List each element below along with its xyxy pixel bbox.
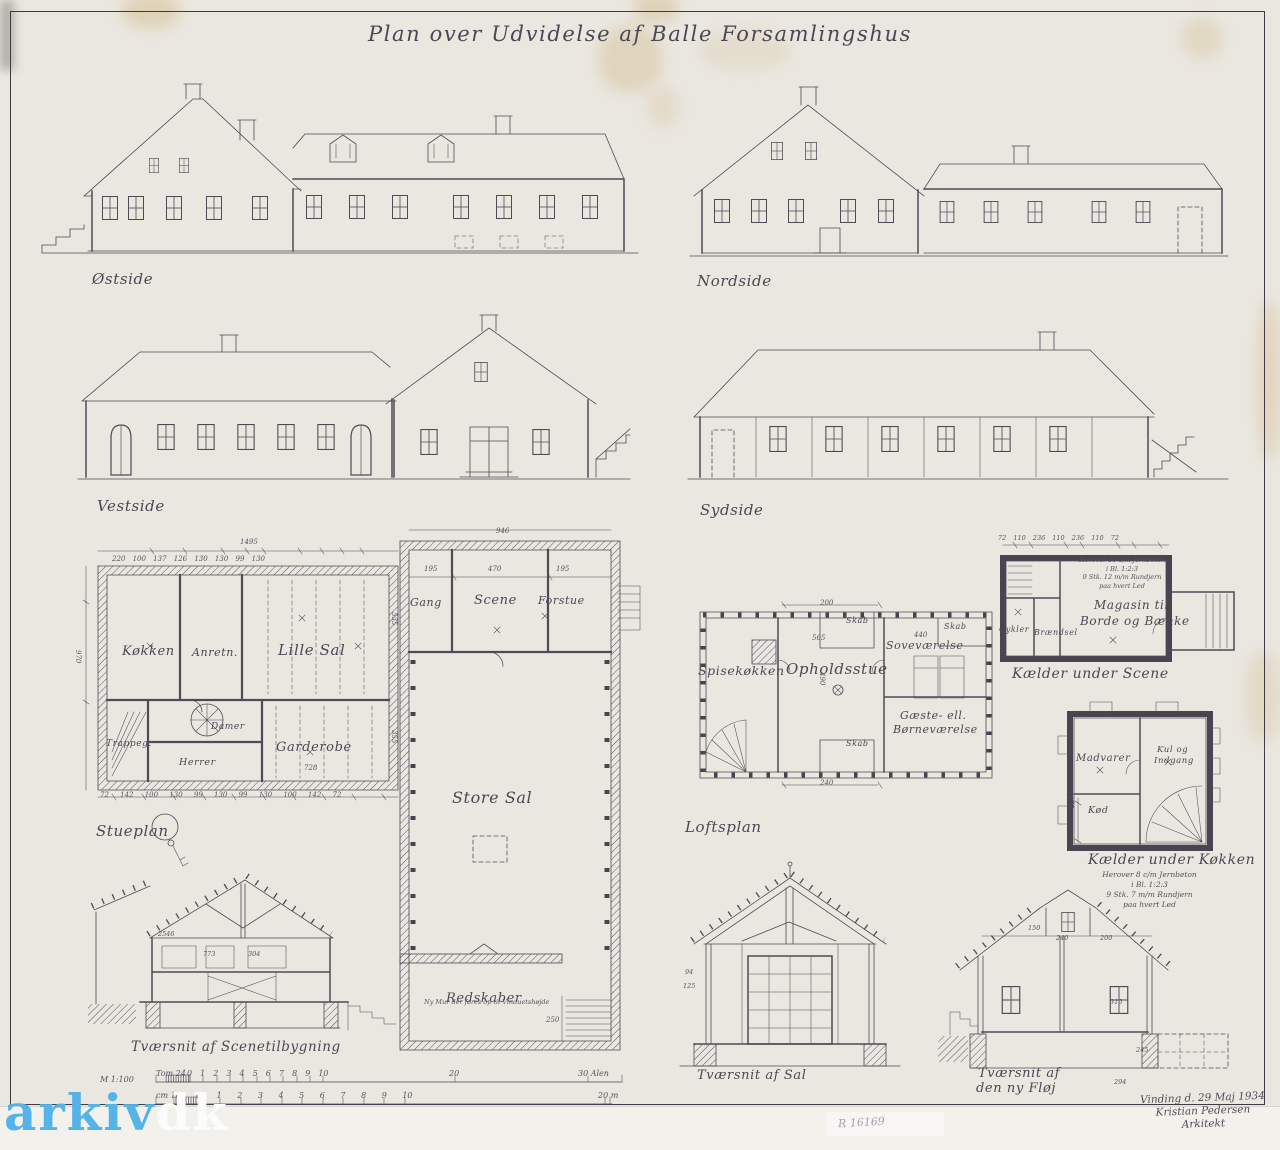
section-scenetilbygning-drawing (88, 876, 396, 1030)
dim-lillesal: 535 (390, 612, 398, 625)
note-line: paa hvert Led (1092, 900, 1207, 910)
arkiv-dk-watermark: arkivdk (4, 1086, 229, 1140)
room-anretn: Anretn. (192, 646, 238, 659)
dim-loft-sove: 440 (914, 631, 927, 639)
note-line: paa hvert Led (1072, 582, 1172, 591)
note-line: Herover 8 c/m Jernbeton (1092, 870, 1207, 880)
note-kaelder-scene: Herover 10 c/m Jernbeton i Bl. 1:2:3 9 S… (1072, 556, 1172, 590)
dim-kaelder-kokken-h: 175 (1066, 795, 1074, 808)
label-stueplan: Stueplan (96, 822, 169, 840)
dim-scene-c: 195 (556, 565, 569, 573)
room-store-sal: Store Sal (452, 788, 532, 807)
room-lille-sal: Lille Sal (278, 641, 345, 659)
elevation-sydside-drawing (688, 332, 1228, 479)
scalebar-bottom-20: 20 m (598, 1091, 618, 1100)
label-nordside: Nordside (697, 272, 772, 290)
room-herrer: Herrer (179, 757, 216, 768)
label-kaelder-kokken: Kælder under Køkken (1088, 852, 1255, 868)
dim-loft-top: 200 (820, 599, 833, 607)
note-line: i Bl. 1:2:3 (1072, 565, 1172, 574)
room-forstue: Forstue (538, 594, 585, 607)
label-ostside: Østside (92, 270, 153, 288)
dim-stueplan-left: 970 (74, 650, 82, 663)
dim-scene-b: 470 (488, 565, 501, 573)
dim-scene-total: 946 (496, 527, 509, 535)
room-cykler: Cykler (999, 625, 1029, 634)
archive-number-stamp: R 16169 (838, 1115, 885, 1130)
label-loftsplan: Loftsplan (685, 818, 762, 836)
dim-loft-mid: 565 (812, 634, 825, 642)
drawing-title: Plan over Udvidelse af Balle Forsamlings… (368, 22, 912, 46)
dim-kaelder-scene-row: 72 110 236 110 236 110 72 (998, 534, 1119, 542)
room-skab: Skab (944, 622, 967, 631)
room-skab: Skab (846, 739, 869, 748)
dim-scene-a: 195 (424, 565, 437, 573)
label-snit-scene: Tværsnit af Scenetilbygning (131, 1039, 341, 1055)
room-trappegang: Trappeg. (106, 739, 152, 749)
dim-garderobe-h: 355 (390, 730, 398, 743)
elevation-nordside-drawing (690, 87, 1228, 256)
room-gaeste-line1: Gæste- ell. (900, 709, 967, 722)
scalebar-top-20: 20 (449, 1069, 459, 1078)
room-madvarer: Madvarer (1076, 753, 1131, 764)
dim-snit-scene-b: 773 (203, 950, 215, 958)
dim-sal-b: 125 (683, 982, 695, 990)
label-kaelder-scene: Kælder under Scene (1012, 666, 1169, 682)
dim-stueplan-bottom-row: 72 142 100 130 99 130 99 130 100 142 72 (100, 791, 341, 799)
dim-snit-scene-a: 2546 (158, 930, 175, 938)
room-spisekokken: Spisekøkken (698, 663, 785, 678)
dim-floj-b: 240 (1056, 934, 1068, 942)
note-line: 9 Stk. 7 m/m Rundjern (1092, 890, 1207, 900)
room-opholdsstue: Opholdsstue (786, 660, 888, 678)
room-magasin-line2: Borde og Bænke (1080, 614, 1190, 628)
dim-floj-e: 245 (1136, 1046, 1148, 1054)
dim-floj-c: 200 (1100, 934, 1112, 942)
architect-signature: Vinding d. 29 Maj 1934 Kristian Pedersen… (1127, 1089, 1278, 1133)
label-sydside: Sydside (700, 501, 764, 519)
room-kul-line1: Kul og (1157, 745, 1188, 755)
scalebar-top-30: 30 Alen (578, 1069, 609, 1078)
scanned-architectural-drawing-sheet: Plan over Udvidelse af Balle Forsamlings… (0, 0, 1280, 1150)
note-store-sal-wall: Ny Mur der føres op til Vinduetshøjde (424, 998, 549, 1006)
room-damer: Damer (211, 722, 245, 732)
note-kaelder-kokken: Herover 8 c/m Jernbeton i Bl. 1:2:3 9 St… (1092, 870, 1207, 910)
dim-floj-d: 310 (1110, 998, 1122, 1006)
room-kul-line2: Indgang (1154, 756, 1194, 766)
elevation-ostside-drawing (42, 84, 638, 253)
dim-stueplan-top-row: 220 100 137 126 130 130 99 130 (112, 555, 265, 563)
section-sal-drawing (680, 862, 900, 1066)
dim-loft-bottom: 240 (820, 779, 833, 787)
label-snit-sal: Tværsnit af Sal (697, 1068, 807, 1083)
elevation-vestside-drawing (78, 315, 630, 479)
label-snit-floj-line1: Tværsnit af (978, 1066, 1060, 1081)
dim-redskaber: 250 (546, 1016, 559, 1024)
watermark-dk: dk (155, 1083, 229, 1142)
dim-floj-a: 150 (1028, 924, 1040, 932)
dim-garderobe-w: 728 (304, 764, 317, 772)
scalebar-top-unit: Tom 24 (156, 1069, 186, 1078)
room-kokken: Køkken (122, 644, 175, 659)
room-gang: Gang (410, 596, 442, 609)
dim-floj-f: 294 (1114, 1078, 1126, 1086)
room-sovevaerelse: Soveværelse (886, 639, 963, 652)
note-line: i Bl. 1:2:3 (1092, 880, 1207, 890)
dim-stueplan-total: 1495 (240, 538, 258, 546)
dim-snit-scene-c: 304 (248, 950, 260, 958)
room-kod: Kød (1088, 805, 1109, 816)
room-skab: Skab (846, 616, 869, 625)
section-ny-floj-drawing (938, 890, 1228, 1068)
room-scene: Scene (474, 593, 517, 608)
note-line: Herover 10 c/m Jernbeton (1072, 556, 1172, 565)
dim-loft-h: 490 (818, 672, 826, 685)
plan-kaelder-kokken-drawing (1058, 702, 1220, 848)
note-line: 9 Stk. 12 m/m Rundjern (1072, 573, 1172, 582)
room-gaeste-line2: Børneværelse (893, 723, 978, 736)
room-magasin-line1: Magasin til (1094, 598, 1169, 612)
room-braendsel: Brændsel (1034, 628, 1078, 637)
label-snit-floj-line2: den ny Fløj (976, 1081, 1056, 1096)
watermark-arkiv: arkiv (4, 1083, 155, 1142)
label-vestside: Vestside (97, 497, 165, 515)
dim-sal-a: 94 (685, 968, 693, 976)
scalebar-top-ticks: 0 1 2 3 4 5 6 7 8 9 10 (187, 1069, 329, 1078)
room-garderobe: Garderobe (276, 740, 352, 755)
